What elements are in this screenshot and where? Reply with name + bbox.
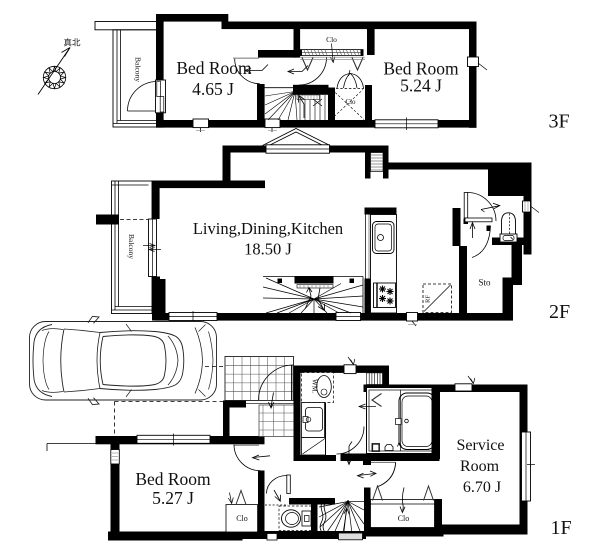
svg-text:Balcony: Balcony	[134, 57, 143, 82]
svg-text:2F: 2F	[549, 301, 570, 323]
svg-text:Bed Room: Bed Room	[176, 58, 252, 78]
svg-text:Sto: Sto	[478, 278, 491, 288]
svg-text:18.50 J: 18.50 J	[244, 240, 292, 259]
svg-text:Clo: Clo	[345, 98, 356, 106]
svg-text:4.65 J: 4.65 J	[192, 79, 234, 99]
svg-text:Clo: Clo	[398, 514, 410, 523]
svg-text:真北: 真北	[64, 38, 82, 48]
svg-text:WM.: WM.	[311, 379, 319, 394]
svg-text:6.70 J: 6.70 J	[463, 479, 501, 496]
svg-text:RF: RF	[425, 295, 432, 303]
svg-text:5.24 J: 5.24 J	[400, 76, 442, 96]
svg-text:Balcony: Balcony	[127, 234, 136, 259]
svg-text:1F: 1F	[550, 517, 571, 539]
svg-text:Room: Room	[460, 458, 500, 475]
svg-text:3F: 3F	[548, 111, 569, 133]
svg-text:Clo: Clo	[326, 35, 337, 44]
svg-text:Service: Service	[457, 437, 505, 454]
svg-text:Living,Dining,Kitchen: Living,Dining,Kitchen	[193, 219, 343, 238]
svg-text:5.27 J: 5.27 J	[152, 488, 194, 508]
svg-text:Bed Room: Bed Room	[135, 469, 211, 489]
svg-text:Clo: Clo	[236, 514, 248, 523]
